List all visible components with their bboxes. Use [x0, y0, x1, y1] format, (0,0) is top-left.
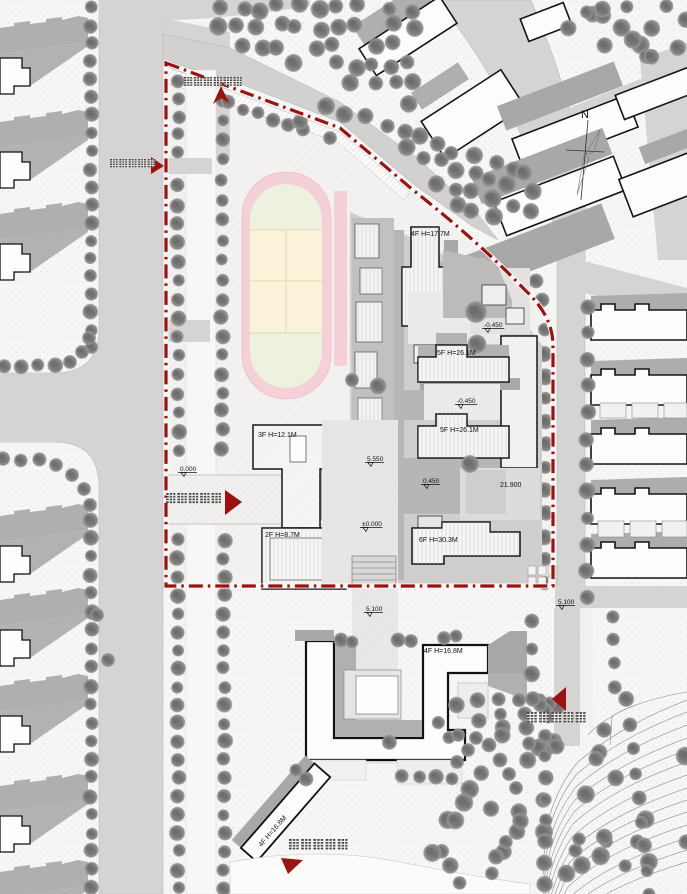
svg-text:-0.450: -0.450 — [484, 322, 503, 329]
svg-text:±0.000: ±0.000 — [362, 521, 382, 528]
svg-text:5F H=26.1M: 5F H=26.1M — [437, 350, 476, 357]
svg-text:4F H=17.7M: 4F H=17.7M — [411, 231, 450, 238]
svg-text:5.100: 5.100 — [558, 599, 575, 606]
svg-text:0.000: 0.000 — [180, 466, 197, 473]
svg-text:4F H=16.8M: 4F H=16.8M — [424, 648, 463, 655]
svg-text:N: N — [581, 109, 589, 121]
svg-text:6F H=30.3M: 6F H=30.3M — [419, 537, 458, 544]
svg-text:0.450: 0.450 — [423, 478, 440, 485]
svg-text:3F H=12.1M: 3F H=12.1M — [258, 432, 297, 439]
svg-text:-0.450: -0.450 — [457, 398, 476, 405]
svg-text:5F H=26.1M: 5F H=26.1M — [440, 427, 479, 434]
svg-text:2F H=8.7M: 2F H=8.7M — [265, 532, 300, 539]
svg-text:5.550: 5.550 — [367, 456, 384, 463]
svg-text:21.900: 21.900 — [500, 482, 522, 489]
svg-text:5.100: 5.100 — [366, 606, 383, 613]
